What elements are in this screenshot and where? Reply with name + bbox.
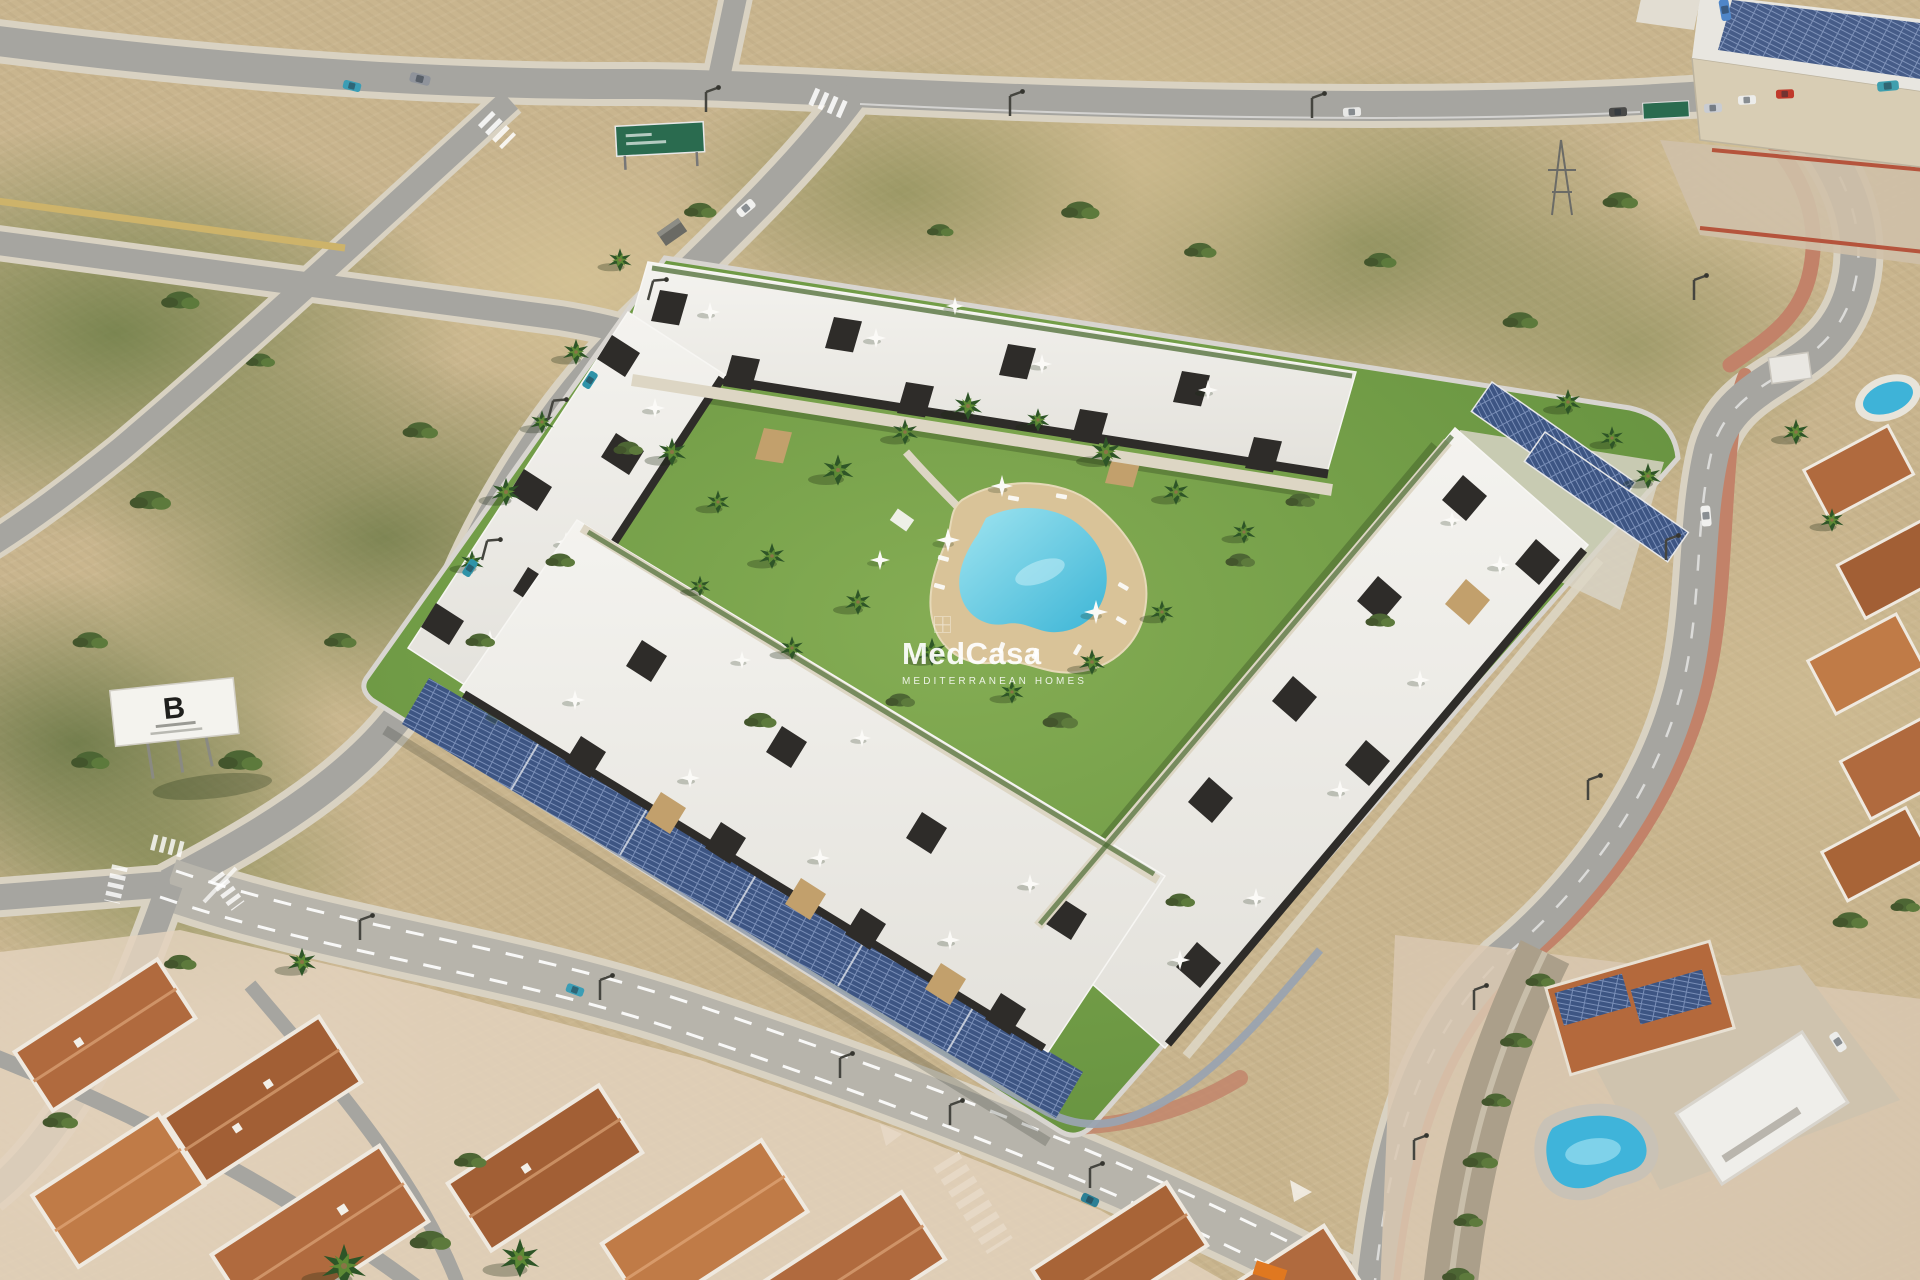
aerial-render: B MedCasa MEDITERRANEAN HOMES <box>0 0 1920 1280</box>
billboard: B <box>110 675 274 808</box>
utility-box <box>657 218 687 246</box>
highway-sign <box>615 122 705 171</box>
villa-district <box>1198 935 1920 1280</box>
industrial-warehouse <box>1636 0 1920 265</box>
aerial-scene: B <box>0 0 1920 1280</box>
billboard-letter: B <box>162 691 187 726</box>
power-pylon <box>1548 140 1576 215</box>
highway-sign <box>1643 101 1690 119</box>
right-edge-houses <box>1768 352 1920 928</box>
